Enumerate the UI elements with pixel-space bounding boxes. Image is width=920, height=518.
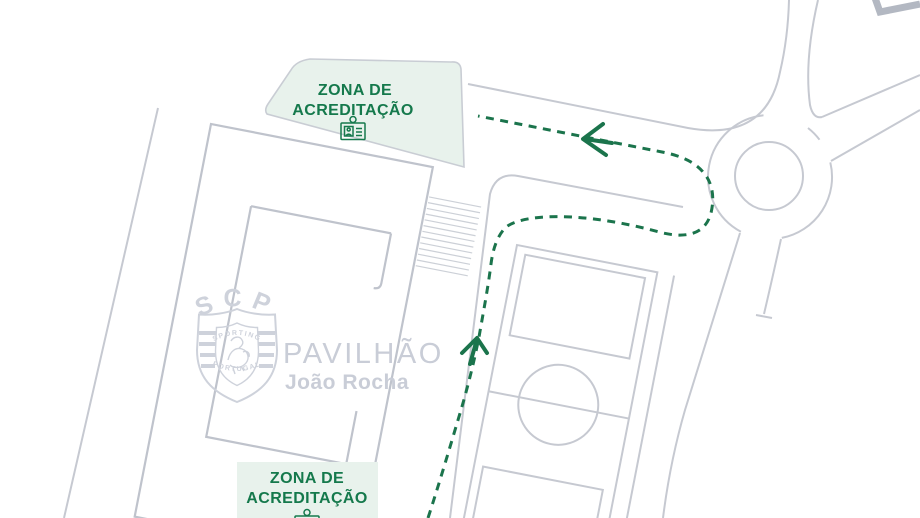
- road-northeast-upper: [822, 75, 920, 117]
- corner-bracket-mark: [875, 0, 920, 12]
- roundabout-outer-arcs: [708, 115, 832, 238]
- zone-label-line2: ACREDITAÇÃO: [246, 487, 367, 507]
- zone-label-line1: ZONA DE: [270, 470, 344, 487]
- road-left: [64, 108, 158, 518]
- field-boundary: [454, 245, 657, 518]
- crest-initials: SCP: [191, 285, 283, 323]
- zone-label-line1: ZONA DE: [318, 82, 392, 99]
- venue-map: SCP SPORTING PORTUGAL PAVILHÃO João Roch…: [0, 0, 920, 518]
- building-subtitle: João Rocha: [285, 371, 409, 394]
- penalty-area-bottom: [466, 467, 603, 518]
- roundabout: [708, 115, 832, 238]
- building-outline: [135, 124, 433, 518]
- penalty-area-top: [510, 255, 645, 359]
- sports-field: [445, 245, 674, 518]
- road-north-right: [808, 0, 822, 117]
- building-title: PAVILHÃO: [283, 336, 444, 370]
- scp-crest: SCP SPORTING PORTUGAL: [191, 285, 283, 403]
- pavilion-building: [135, 124, 487, 518]
- route-path: [428, 116, 713, 518]
- road-top-upper: [468, 0, 789, 130]
- accreditation-route: [428, 116, 713, 518]
- halfway-line: [489, 391, 629, 418]
- roundabout-inner-circle: [735, 142, 803, 210]
- arrow-left-icon: [583, 124, 612, 155]
- road-northeast-lower: [831, 110, 920, 161]
- road-south-right: [756, 239, 781, 318]
- map-canvas: SCP SPORTING PORTUGAL PAVILHÃO João Roch…: [0, 0, 920, 518]
- crest-stripes: [199, 333, 275, 366]
